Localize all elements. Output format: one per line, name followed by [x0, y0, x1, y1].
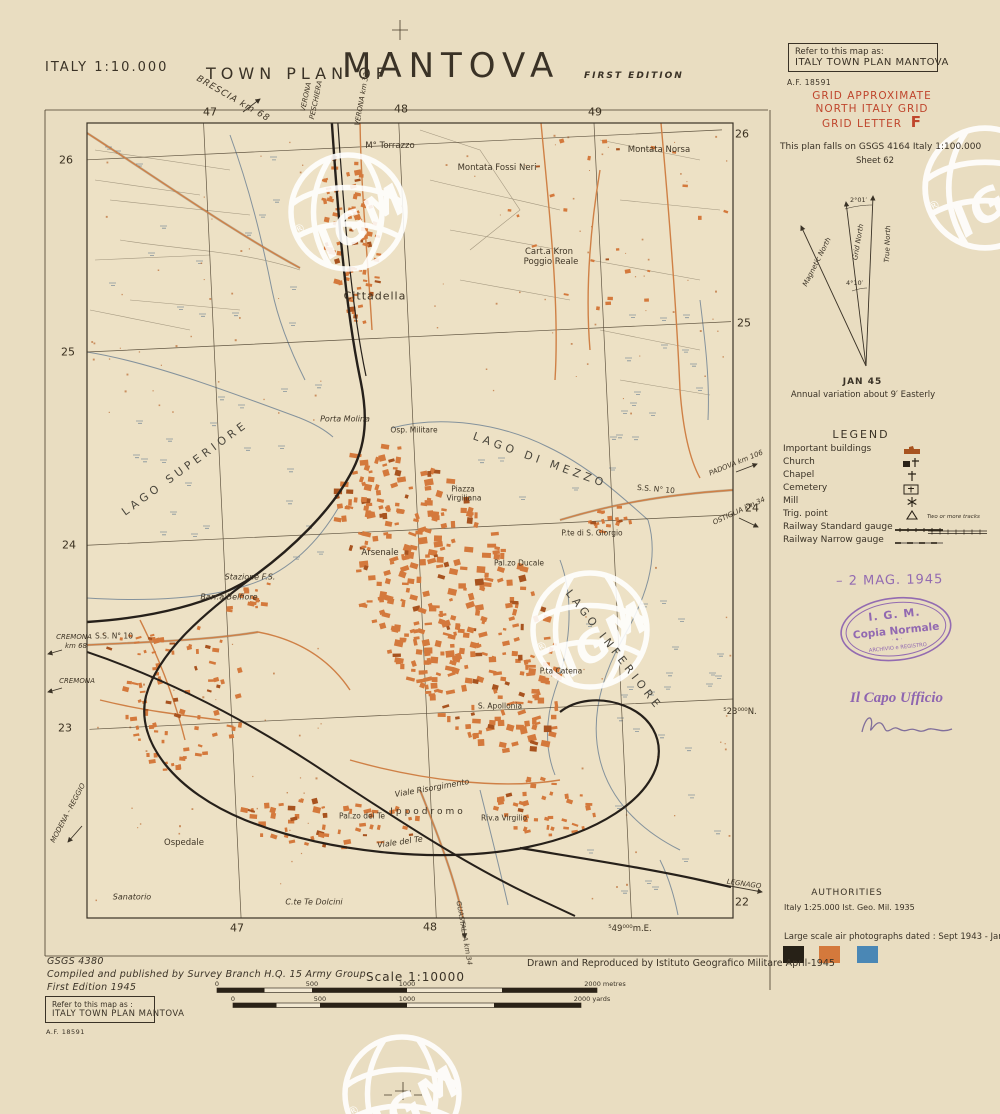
- map-label: Ospedale: [164, 838, 204, 848]
- stamp-line1: I. G. M.: [868, 605, 921, 623]
- map-label: S. Apollonia: [478, 702, 522, 711]
- refer-line2: ITALY TOWN PLAN MANTOVA: [52, 1009, 148, 1019]
- map-face: [87, 123, 733, 918]
- refer-line1: Refer to this map as :: [52, 1000, 148, 1009]
- legend-label: Trig. point: [783, 509, 828, 519]
- map-label: Barr.a Belfiore: [200, 593, 257, 602]
- map-label: Sanatorio: [113, 893, 151, 902]
- map-label: S.S. N° 10: [95, 632, 133, 641]
- refer-line1: Refer to this map as:: [795, 47, 931, 57]
- map-label: 24: [62, 539, 76, 552]
- drawn-by-note: Drawn and Reproduced by Istituto Geograf…: [527, 958, 835, 969]
- legend-label: Chapel: [783, 470, 814, 480]
- map-label: Osp. Militare: [390, 426, 437, 435]
- scalebar-tick: 0: [231, 995, 235, 1003]
- authorities-line: Italy 1:25.000 Ist. Geo. Mil. 1935: [784, 903, 915, 912]
- true-north-label: True North: [883, 225, 892, 262]
- map-label: Porta Molina: [320, 415, 370, 424]
- map-label: Arsenale: [361, 548, 398, 558]
- map-label: P.ta Catena: [540, 667, 582, 676]
- legend-title: LEGEND: [781, 428, 941, 441]
- legend-label: Cemetery: [783, 483, 827, 493]
- series-number: GSGS 4380: [47, 956, 104, 967]
- variation-date: JAN 45: [800, 377, 925, 387]
- igm-oval-stamp: I. G. M. Copia Normale · ✦ · ARCHIVIO e …: [833, 588, 962, 672]
- map-label: 47: [203, 106, 217, 119]
- angle-bottom: 4°10′: [846, 279, 863, 287]
- scalebar-tick: 2000 metres: [584, 980, 625, 988]
- map-label: Ippodromo: [390, 807, 466, 817]
- map-label: Pal.zo del Te: [339, 812, 385, 821]
- edition-line: First Edition 1945: [47, 982, 136, 993]
- map-label: km 68: [65, 642, 87, 650]
- map-label: Cittadella: [344, 290, 407, 303]
- map-label: Montata Fossi Neri: [458, 163, 537, 173]
- compiled-note: Compiled and published by Survey Branch …: [47, 969, 366, 980]
- map-label: CREMONA: [56, 633, 92, 641]
- grid-note: GRID APPROXIMATE NORTH ITALY GRID GRID L…: [786, 90, 958, 131]
- map-label: Montata Norsa: [628, 145, 690, 155]
- grid-note-line1: GRID APPROXIMATE: [786, 90, 958, 103]
- angle-top: 2°01′: [850, 196, 867, 204]
- map-label: M° Torrazzo: [365, 141, 414, 151]
- map-label: Cart.a Kron: [525, 247, 573, 257]
- map-label: CREMONA: [59, 677, 95, 685]
- scalebar-tick: 2000 yards: [574, 995, 611, 1003]
- date-stamp: – 2 MAG. 1945: [836, 572, 944, 589]
- grid-note-line3: GRID LETTER F: [786, 116, 958, 131]
- legend-label: Railway Narrow gauge: [783, 535, 884, 545]
- scalebar-tick: 0: [215, 980, 219, 988]
- air-photos-note: Large scale air photographs dated : Sept…: [784, 932, 996, 942]
- refer-number-bottom: A.F. 18591: [46, 1028, 85, 1036]
- legend-label: Mill: [783, 496, 798, 506]
- legend-label: Church: [783, 457, 815, 467]
- map-label: Riv.a Virgilio: [481, 814, 527, 823]
- map-sheet: IGM ®: [0, 0, 1000, 1114]
- map-label: ⁵49⁰⁰⁰m.E.: [608, 924, 652, 934]
- scalebar-tick: 1000: [399, 980, 416, 988]
- map-label: 47: [230, 922, 244, 935]
- scalebar-tick: 500: [306, 980, 318, 988]
- map-label: C.te Te Dolcini: [285, 898, 342, 907]
- page-title: MANTOVA: [342, 46, 560, 86]
- signature: [856, 706, 960, 744]
- refer-line2: ITALY TOWN PLAN MANTOVA: [795, 57, 931, 68]
- colour-swatch-blue: [857, 946, 878, 963]
- map-label: 23: [58, 722, 72, 735]
- refer-box-bottom: Refer to this map as : ITALY TOWN PLAN M…: [45, 996, 155, 1023]
- scalebar-tick: 500: [314, 995, 326, 1003]
- map-label: 26: [735, 128, 749, 141]
- falls-line2: Sheet 62: [780, 156, 970, 167]
- variation-note: Annual variation about 9′ Easterly: [768, 390, 958, 400]
- capo-ufficio-stamp: Il Capo Ufficio: [850, 690, 943, 707]
- svg-text:· ✦ ·: · ✦ ·: [891, 636, 903, 643]
- map-label: 48: [423, 921, 437, 934]
- grid-letter-value: F: [911, 113, 922, 131]
- map-label: Stazione F.S.: [225, 573, 276, 582]
- legend: LEGEND Important buildings Church Chapel…: [781, 428, 996, 553]
- legend-label: Important buildings: [783, 444, 871, 454]
- refer-box-top: Refer to this map as: ITALY TOWN PLAN MA…: [788, 43, 938, 72]
- stamp-line3: ARCHIVIO e REGISTRO: [869, 642, 927, 654]
- map-label: 22: [735, 896, 749, 909]
- map-label: 48: [394, 103, 408, 116]
- two-tracks-icon: [927, 521, 989, 540]
- map-label: P.te di S. Giorgio: [561, 529, 622, 538]
- authorities-title: AUTHORITIES: [782, 888, 912, 898]
- map-label: Pal.zo Ducale: [494, 559, 544, 568]
- grid-note-line2: NORTH ITALY GRID: [786, 103, 958, 116]
- falls-note: This plan falls on GSGS 4164 Italy 1:100…: [780, 142, 970, 167]
- edition-note: FIRST EDITION: [584, 71, 684, 81]
- map-label: Poggio Reale: [524, 257, 579, 267]
- two-tracks-note: Two or more tracks: [927, 514, 980, 520]
- scale-label: Scale 1:10000: [366, 970, 465, 984]
- map-label: 26: [59, 154, 73, 167]
- legend-label: Railway Standard gauge: [783, 522, 893, 532]
- map-label: 25: [61, 346, 75, 359]
- map-label: ⁵23⁰⁰⁰N.: [723, 707, 757, 717]
- map-label: 49: [588, 106, 602, 119]
- sheet-scale-note: ITALY 1:10.000: [45, 60, 168, 75]
- map-label: Piazza: [451, 485, 475, 494]
- map-label: Virgiliana: [447, 494, 482, 503]
- falls-line1: This plan falls on GSGS 4164 Italy 1:100…: [780, 142, 970, 153]
- refer-number: A.F. 18591: [787, 78, 831, 87]
- scalebar-tick: 1000: [399, 995, 416, 1003]
- grid-letter-label: GRID LETTER: [822, 118, 902, 130]
- map-label: 25: [737, 317, 751, 330]
